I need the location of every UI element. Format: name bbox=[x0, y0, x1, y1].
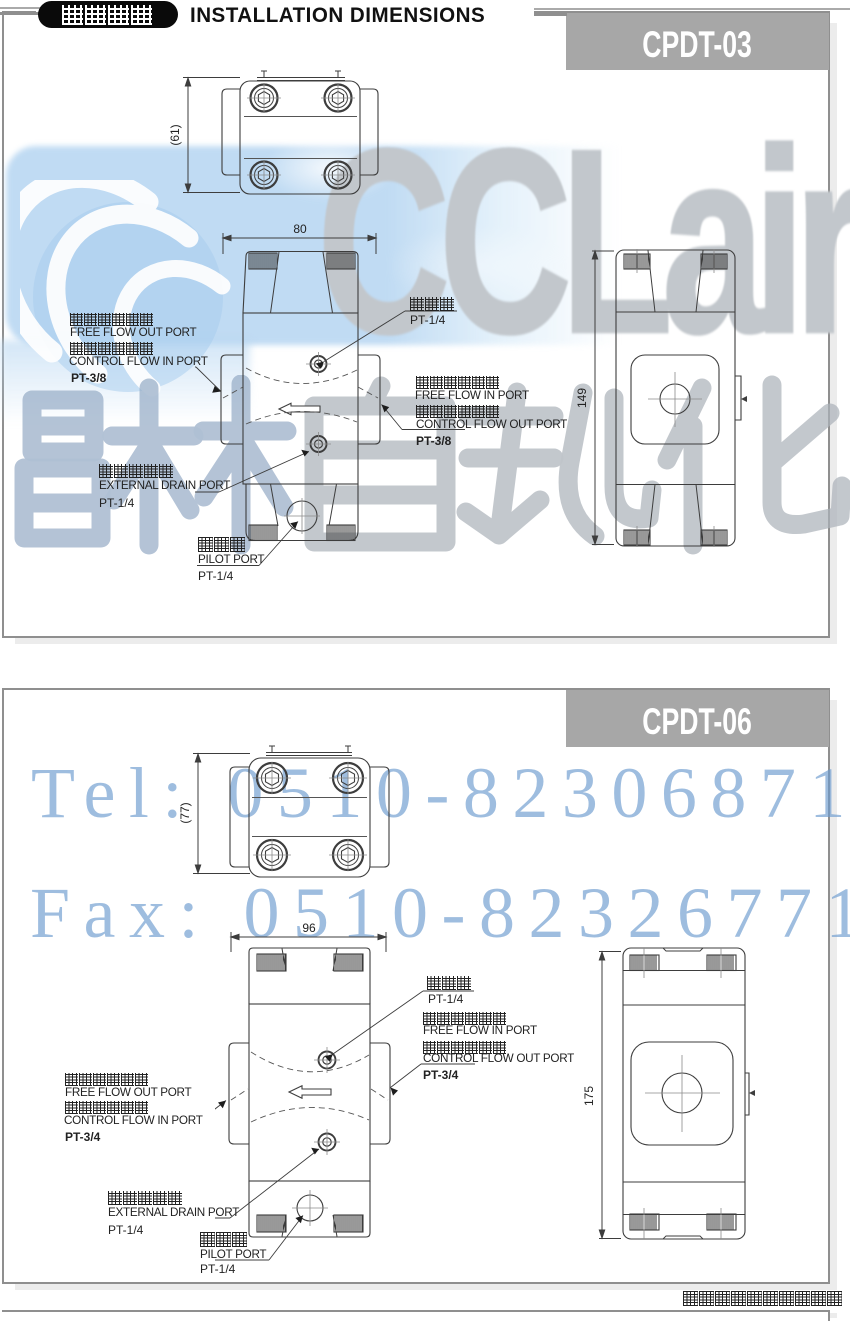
svg-text:175: 175 bbox=[582, 1086, 596, 1106]
svg-text:(77): (77) bbox=[178, 802, 192, 823]
svg-text:(61): (61) bbox=[168, 124, 182, 145]
svg-text:149: 149 bbox=[575, 388, 589, 408]
svg-text:96: 96 bbox=[302, 921, 316, 935]
svg-text:80: 80 bbox=[293, 222, 307, 236]
